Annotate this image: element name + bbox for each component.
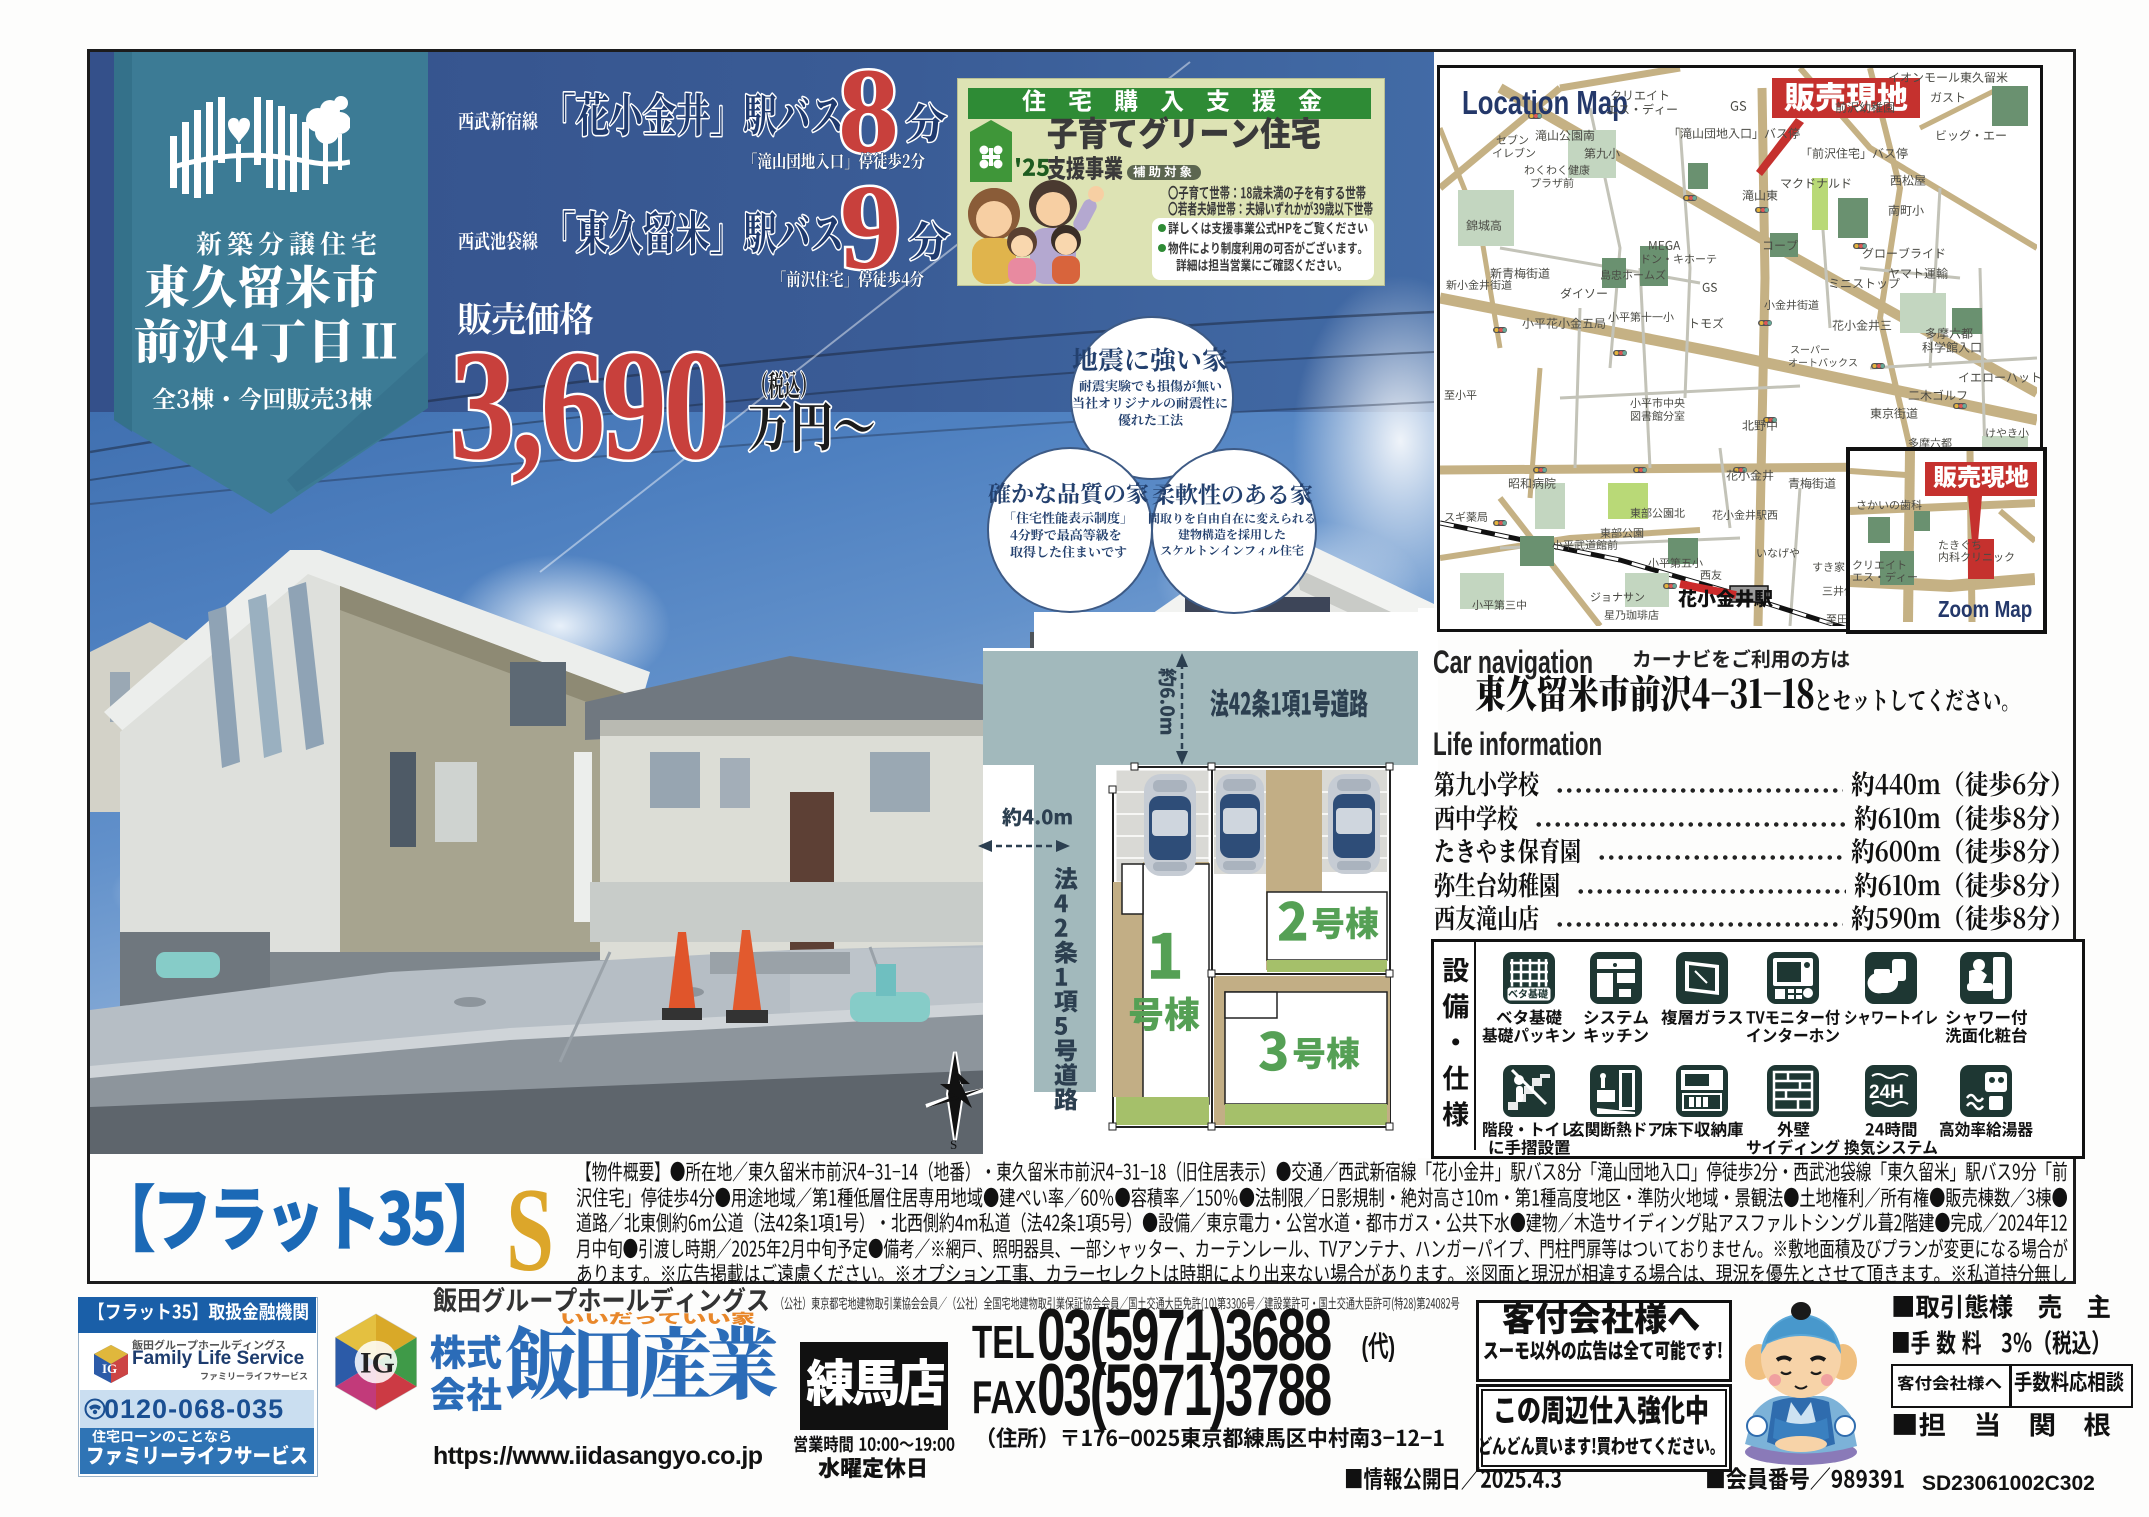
svg-text:S: S — [950, 1137, 957, 1150]
svg-text:IG: IG — [102, 1361, 117, 1376]
svg-text:S: S — [506, 1163, 554, 1296]
svg-text:3,690: 3,690 — [450, 318, 725, 493]
svg-text:TEL: TEL — [972, 1318, 1035, 1368]
svg-text:24H: 24H — [1869, 1082, 1904, 1103]
svg-text:03(5971)3788: 03(5971)3788 — [1037, 1350, 1331, 1431]
svg-text:(代): (代) — [1362, 1332, 1396, 1363]
svg-text:IG: IG — [360, 1347, 395, 1380]
svg-text:FAX: FAX — [972, 1373, 1037, 1423]
